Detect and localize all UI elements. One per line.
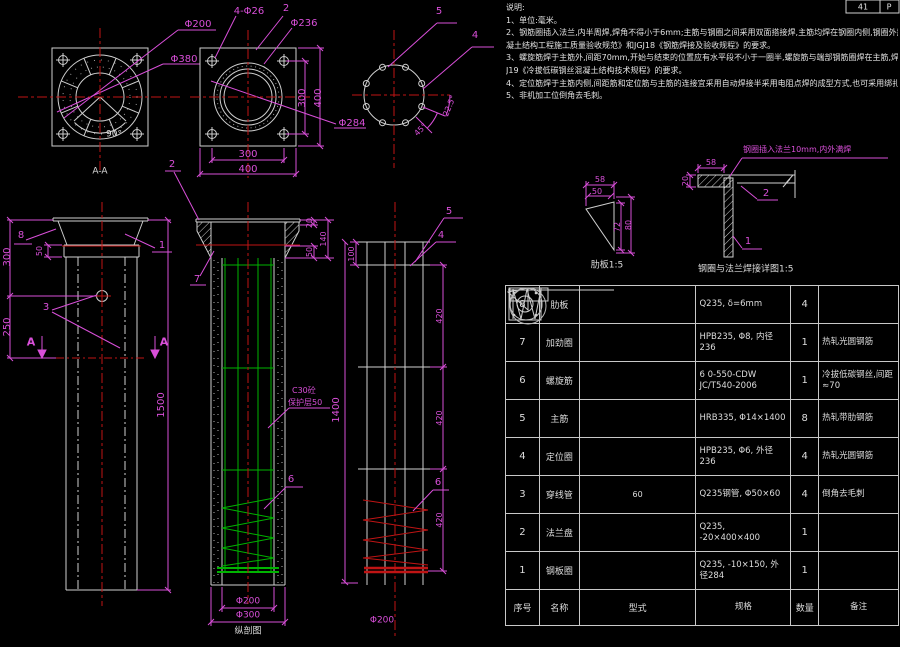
balloon-long-item7: 7 <box>194 275 200 285</box>
view-ring-centerlines <box>352 30 450 168</box>
dim-300-vert: 300 <box>298 88 308 107</box>
dim-weld-58: 58 <box>706 159 716 167</box>
dim-side-1500: 1500 <box>157 392 167 417</box>
dim-long-d300: Φ300 <box>236 612 260 621</box>
dim-rib-80: 80 <box>625 220 633 230</box>
bom-name: 主筋 <box>540 400 580 437</box>
dim-400-vert: 400 <box>314 88 324 107</box>
bom-remark: 热轧光圆钢筋 <box>819 324 898 361</box>
bom-spec: Q235, -10×150, 外径284 <box>696 552 791 589</box>
balloon-side-item1: 1 <box>159 241 165 251</box>
bom-col-header: 规格 <box>696 590 791 625</box>
view-cage-spiral <box>363 202 428 638</box>
bom-shape <box>580 400 697 437</box>
dim-long-d200: Φ200 <box>236 598 260 607</box>
bom-row-7: 7 加劲圈 HPB235, Φ8, 内径236 1 热轧光圆钢筋 <box>506 324 898 362</box>
notes-block: 说明: 1、单位:毫米。 2、钢筋圈插入法兰,内半周焊,焊角不得小于6mm;主筋… <box>506 2 898 103</box>
section-marker-a-left: A <box>27 337 36 348</box>
view-aa-centerlines <box>18 28 183 170</box>
bom-spec: Q235, -20×400×400 <box>696 514 791 551</box>
caption-section-aa: A-A <box>92 168 107 177</box>
note-line: 凝土结构工程施工质量验收规范》和JGJ18《钢筋焊接及验收规程》的要求。 <box>506 40 898 53</box>
caption-long-section: 纵剖图 <box>234 628 261 637</box>
bom-no: 6 <box>506 362 540 399</box>
dim-400-horz: 400 <box>238 165 257 175</box>
bom-qty: 4 <box>791 476 819 513</box>
dim-weld-20: 20 <box>682 176 690 186</box>
dim-cage-d200: Φ200 <box>370 617 394 626</box>
dim-d200: Φ200 <box>185 20 212 30</box>
bom-header-row: 序号 名称 型式 规格 数量 备注 <box>506 590 898 625</box>
bom-spec: HRB335, Φ14×1400 <box>696 400 791 437</box>
dim-long-50: 50 <box>306 247 314 257</box>
note-cover-thickness: 保护层50 <box>288 399 322 407</box>
detail-weld-dims <box>686 158 888 249</box>
bom-shape: 60 <box>580 476 697 513</box>
bom-spec: Q235钢管, Φ50×60 <box>696 476 791 513</box>
dim-long-20: 20 <box>306 218 314 228</box>
bom-shape <box>580 438 697 475</box>
notes-title: 说明: <box>506 2 898 15</box>
bom-name: 法兰盘 <box>540 514 580 551</box>
note-concrete-grade: C30砼 <box>292 387 316 395</box>
dim-d284: Φ284 <box>339 119 366 129</box>
note-weld: 钢圈插入法兰10mm,内外满焊 <box>743 146 851 154</box>
bom-remark <box>819 552 898 589</box>
balloon-item5: 5 <box>436 7 442 17</box>
bom-row-2: 2 法兰盘 Q235, -20×400×400 1 <box>506 514 898 552</box>
view-long-centerlines <box>196 202 300 604</box>
note-line: 5、非机加工位倒角去毛刺。 <box>506 90 898 103</box>
note-line: J19《冷拔低碳钢丝混凝土结构技术规程》的要求。 <box>506 65 898 78</box>
bom-qty: 1 <box>791 362 819 399</box>
balloon-item2: 2 <box>283 4 289 14</box>
bom-qty: 8 <box>791 400 819 437</box>
section-marker-a-right: A <box>160 337 169 348</box>
bom-no: 7 <box>506 324 540 361</box>
bom-spec: HPB235, Φ6, 外径236 <box>696 438 791 475</box>
balloon-long-item2: 2 <box>169 160 175 170</box>
bom-no: 2 <box>506 514 540 551</box>
dim-cage-420-b: 420 <box>436 410 444 425</box>
detail-rib-plate <box>586 202 614 250</box>
bom-name: 螺旋筋 <box>540 362 580 399</box>
view-cage-dims <box>341 218 463 583</box>
dim-300-horz: 300 <box>238 150 257 160</box>
view-rebar-cage <box>358 242 430 585</box>
bom-remark <box>819 286 898 323</box>
cad-canvas: Φ200 Φ380 90° A-A 4-Φ26 2 Φ236 Φ284 300 … <box>0 0 900 647</box>
caption-weld-detail: 钢圈与法兰焊接详图1:5 <box>698 266 794 275</box>
balloon-item4: 4 <box>472 31 478 41</box>
bom-qty: 1 <box>791 324 819 361</box>
bom-qty: 4 <box>791 438 819 475</box>
view-side-elevation <box>53 218 148 590</box>
bom-remark: 热轧光圆钢筋 <box>819 438 898 475</box>
note-line: 4、定位筋焊于主筋内侧,间距筋和定位筋与主筋的连接宜采用自动焊接半采用电阻点焊的… <box>506 78 898 91</box>
bom-col-header: 数量 <box>791 590 819 625</box>
bom-qty: 1 <box>791 552 819 589</box>
balloon-cage-item6: 6 <box>435 478 441 488</box>
bom-row-3: 3 穿线管 60 Q235钢管, Φ50×60 4 倒角去毛刺 <box>506 476 898 514</box>
dim-rib-58: 58 <box>595 176 605 184</box>
bom-no: 4 <box>506 438 540 475</box>
bom-qty: 1 <box>791 514 819 551</box>
bom-shape <box>580 324 697 361</box>
view-side-centerlines <box>56 202 146 606</box>
balloon-side-item3: 3 <box>43 303 49 313</box>
dim-angle-90: 90° <box>106 131 122 140</box>
view-side-dims <box>7 220 172 590</box>
bom-name: 加劲圈 <box>540 324 580 361</box>
note-line: 2、钢筋圈插入法兰,内半周焊,焊角不得小于6mm;主筋与钢圈之间采用双面搭接焊,… <box>506 27 898 40</box>
dim-rib-50: 50 <box>592 188 602 196</box>
bom-name: 定位圈 <box>540 438 580 475</box>
shape-tube-dim: 60 <box>633 491 643 499</box>
bom-col-header: 名称 <box>540 590 580 625</box>
bom-col-header: 序号 <box>506 590 540 625</box>
bom-name: 穿线管 <box>540 476 580 513</box>
dim-cage-420-a: 420 <box>436 308 444 323</box>
dim-cage-100: 100 <box>348 246 356 261</box>
balloon-long-item6: 6 <box>288 475 294 485</box>
dim-d380: Φ380 <box>171 55 198 65</box>
dim-cage-1400: 1400 <box>332 397 342 422</box>
bom-spec: HPB235, Φ8, 内径236 <box>696 324 791 361</box>
balloon-side-item8: 8 <box>18 231 24 241</box>
dim-cage-420-c: 420 <box>436 512 444 527</box>
balloon-weld-item1: 1 <box>745 237 751 247</box>
dim-long-140: 140 <box>320 231 328 246</box>
bom-remark: 冷拔低碳钢丝,间距≈70 <box>819 362 898 399</box>
bom-remark: 热轧带肋钢筋 <box>819 400 898 437</box>
note-line: 1、单位:毫米。 <box>506 15 898 28</box>
bom-qty: 4 <box>791 286 819 323</box>
dim-d236: Φ236 <box>291 19 318 29</box>
note-line: 3、螺旋筋焊于主筋外,间距70mm,开始与结束的位置应有水平段不小于一圈半,螺旋… <box>506 52 898 65</box>
balloon-weld-item2: 2 <box>763 189 769 199</box>
bom-col-header: 型式 <box>580 590 697 625</box>
bom-shape <box>580 362 697 399</box>
bom-remark: 倒角去毛刺 <box>819 476 898 513</box>
bom-row-6: 6 螺旋筋 6 0-550-CDW JC/T540-2006 1 冷拔低碳钢丝,… <box>506 362 898 400</box>
bom-no: 3 <box>506 476 540 513</box>
dim-rib-72: 72 <box>614 222 622 232</box>
bom-name: 钢板圈 <box>540 552 580 589</box>
bom-no: 5 <box>506 400 540 437</box>
caption-rib-detail: 肋板1:5 <box>591 262 624 271</box>
bom-no: 1 <box>506 552 540 589</box>
balloon-cage-item5: 5 <box>446 207 452 217</box>
dim-side-300: 300 <box>3 247 13 266</box>
balloon-cage-item4: 4 <box>438 231 444 241</box>
bom-row-5: 5 主筋 HRB335, Φ14×1400 8 热轧带肋钢筋 <box>506 400 898 438</box>
dim-side-250: 250 <box>3 317 13 336</box>
bom-shape <box>580 552 697 589</box>
bom-spec: Q235, δ=6mm <box>696 286 791 323</box>
bom-table: 8 肋板 Q235, δ=6mm 4 7 加劲圈 HPB235, Φ8, 内径2… <box>505 285 899 626</box>
bom-spec: 6 0-550-CDW JC/T540-2006 <box>696 362 791 399</box>
bom-row-1: 1 钢板圈 Q235, -10×150, 外径284 1 <box>506 552 898 590</box>
bom-row-4: 4 定位圈 HPB235, Φ6, 外径236 4 热轧光圆钢筋 <box>506 438 898 476</box>
dim-bolt-holes: 4-Φ26 <box>234 7 265 17</box>
bom-col-header: 备注 <box>819 590 898 625</box>
dim-side-50: 50 <box>36 246 44 256</box>
bom-remark <box>819 514 898 551</box>
bom-shape <box>580 514 697 551</box>
